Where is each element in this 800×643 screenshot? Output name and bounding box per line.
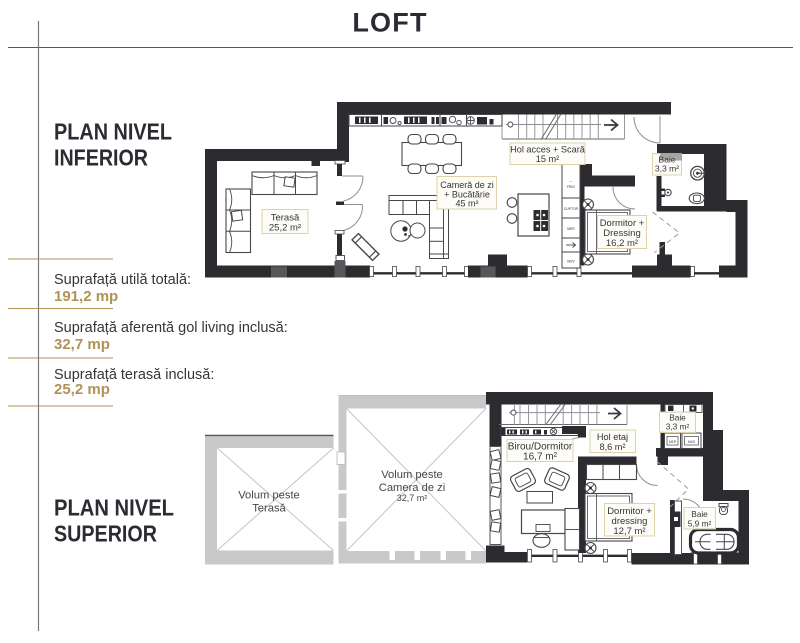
svg-text:Suprafață utilă totală:: Suprafață utilă totală:: [54, 272, 191, 288]
svg-text:CUPTOR: CUPTOR: [564, 207, 579, 211]
svg-text:Cameră de zi: Cameră de zi: [440, 180, 494, 190]
svg-text:16,7 m²: 16,7 m²: [523, 452, 558, 463]
svg-text:5,9 m²: 5,9 m²: [688, 519, 712, 529]
svg-text:---: ---: [569, 180, 572, 184]
svg-text:Hol acces + Scară: Hol acces + Scară: [510, 145, 586, 155]
svg-text:FRIG: FRIG: [567, 185, 575, 189]
svg-text:3,3 m²: 3,3 m²: [666, 422, 690, 432]
svg-text:PLAN NIVEL: PLAN NIVEL: [54, 119, 172, 145]
svg-text:LOFT: LOFT: [352, 8, 427, 38]
svg-text:Suprafață aferentă gol living: Suprafață aferentă gol living inclusă:: [54, 320, 288, 336]
svg-text:25,2 m²: 25,2 m²: [269, 223, 301, 234]
svg-text:8,6 m²: 8,6 m²: [599, 442, 625, 452]
svg-text:32,7 m²: 32,7 m²: [397, 493, 428, 503]
svg-text:INFERIOR: INFERIOR: [54, 145, 148, 171]
svg-text:Volum peste: Volum peste: [238, 490, 300, 502]
svg-text:PLAN NIVEL: PLAN NIVEL: [54, 495, 174, 521]
svg-text:45 m²: 45 m²: [455, 199, 478, 209]
svg-text:3,3 m²: 3,3 m²: [655, 164, 679, 174]
svg-text:MUS: MUS: [688, 440, 695, 444]
svg-text:MER: MER: [567, 227, 575, 231]
svg-text:15 m²: 15 m²: [536, 154, 560, 164]
svg-text:SUPERIOR: SUPERIOR: [54, 521, 157, 547]
svg-text:MER: MER: [669, 440, 677, 444]
svg-text:Baie: Baie: [691, 509, 708, 519]
svg-text:191,2 mp: 191,2 mp: [54, 288, 118, 305]
svg-text:Volum peste: Volum peste: [381, 469, 443, 481]
svg-text:Hol etaj: Hol etaj: [597, 432, 628, 442]
svg-text:12,7 m²: 12,7 m²: [613, 526, 645, 537]
svg-text:25,2 mp: 25,2 mp: [54, 381, 110, 398]
svg-text:32,7 mp: 32,7 mp: [54, 336, 110, 353]
svg-text:16,2 m²: 16,2 m²: [606, 238, 638, 249]
svg-text:Terasă: Terasă: [252, 503, 286, 515]
svg-text:MSV: MSV: [567, 260, 575, 264]
